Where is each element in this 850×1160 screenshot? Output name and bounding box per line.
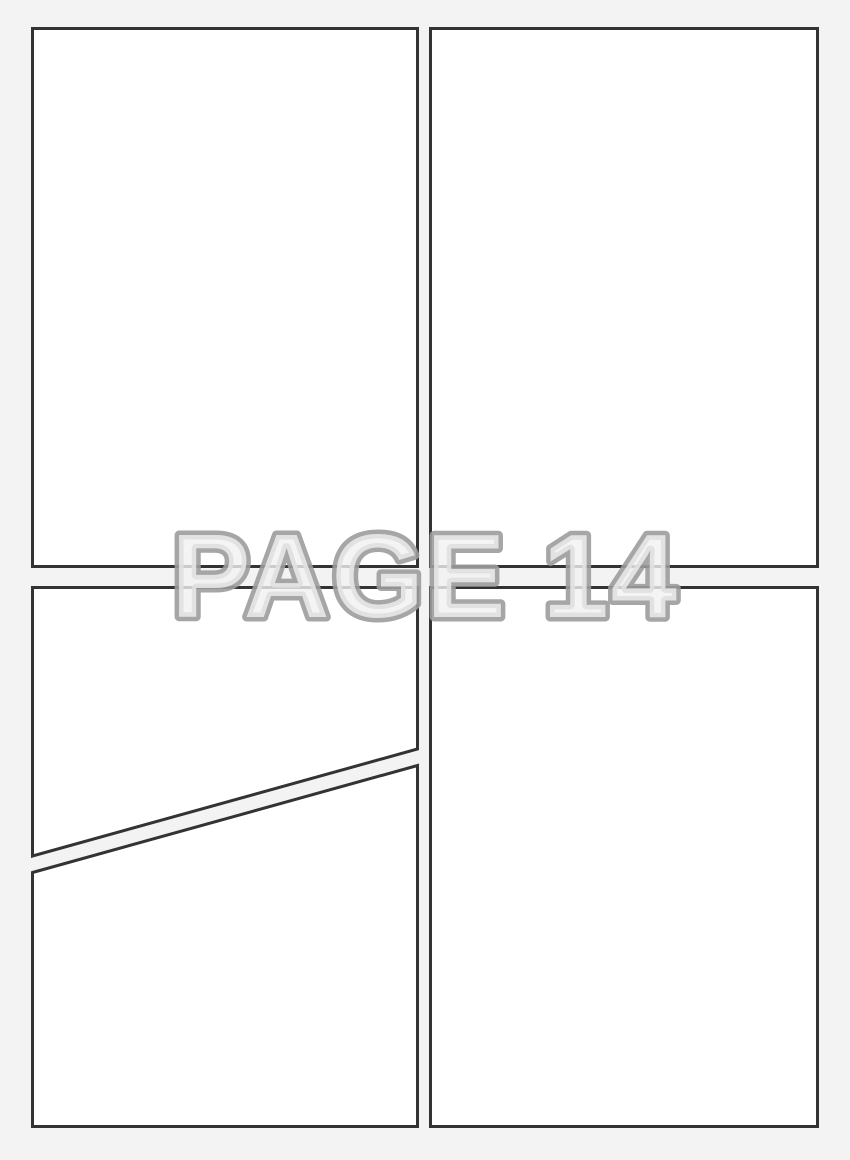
page-number-watermark: PAGE 14 [171, 510, 679, 643]
comic-page-canvas: PAGE 14 [0, 0, 850, 1160]
panel-bottom-right [431, 588, 818, 1127]
comic-page-template: PAGE 14 [0, 0, 850, 1160]
panel-top-right [431, 29, 818, 567]
panel-top-left [33, 29, 418, 567]
